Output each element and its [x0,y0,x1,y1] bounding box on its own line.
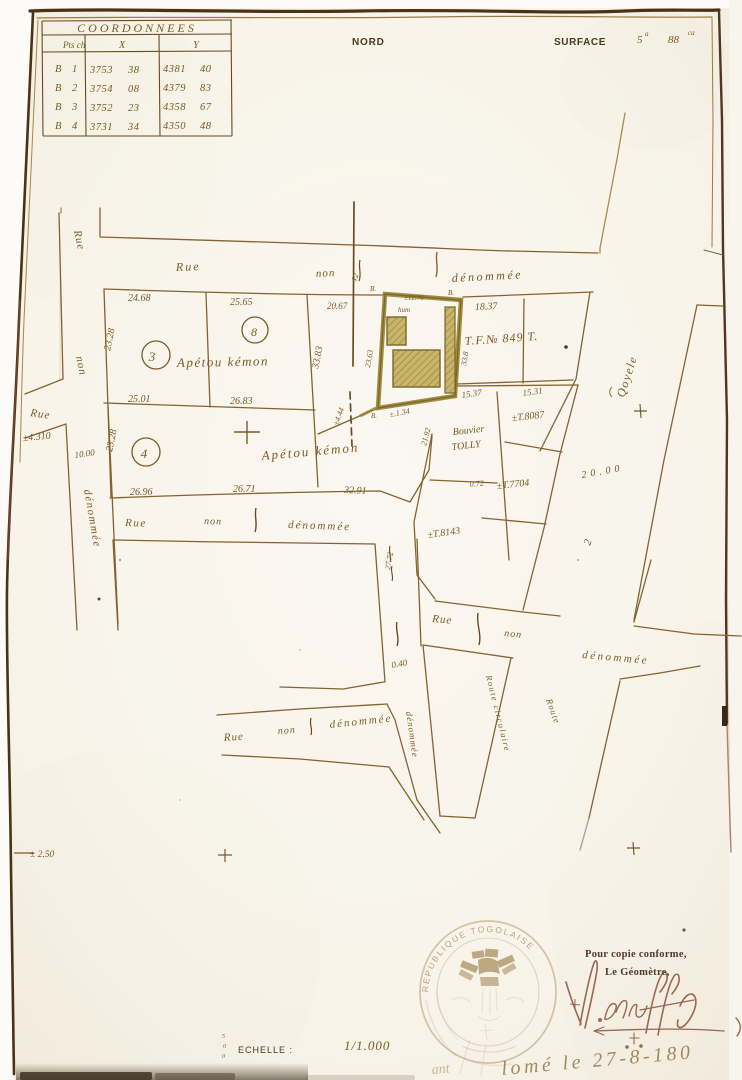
svg-text:32.91: 32.91 [343,485,367,497]
svg-text:38: 38 [127,65,140,76]
svg-text:3753: 3753 [89,65,113,76]
svg-text:0.72: 0.72 [469,479,484,489]
svg-text:B: B [55,121,62,132]
svg-text:Le Géomètre,: Le Géomètre, [605,967,670,978]
svg-text:non: non [277,725,296,737]
svg-text:Rue: Rue [222,731,244,744]
svg-text:3754: 3754 [89,84,113,95]
svg-text:26.71: 26.71 [233,484,256,495]
svg-text:Pour copie conforme,: Pour copie conforme, [585,949,687,960]
svg-text:B.: B. [371,412,377,420]
svg-text:COORDONNEES: COORDONNEES [77,21,197,35]
svg-text:26.96: 26.96 [130,487,153,498]
svg-text:B.: B. [448,289,454,297]
svg-text:Rue: Rue [175,259,201,274]
svg-text:26.83: 26.83 [230,396,253,407]
svg-text:5: 5 [637,34,643,46]
svg-text:non: non [504,628,523,641]
svg-text:3752: 3752 [89,103,113,114]
svg-text:SURFACE: SURFACE [554,37,606,48]
svg-text:B.: B. [370,285,376,293]
svg-text:5: 5 [222,1034,225,1040]
svg-text:1/1.000: 1/1.000 [344,1038,390,1053]
svg-text:4: 4 [141,446,148,461]
svg-text:8: 8 [251,325,257,339]
svg-text:4: 4 [72,121,78,132]
svg-text:4358: 4358 [163,102,186,113]
svg-text:48: 48 [200,121,212,132]
svg-text:ca: ca [688,29,695,37]
svg-text:non: non [316,267,336,280]
svg-text:X: X [118,40,126,51]
svg-text:±12.76: ±12.76 [404,294,424,302]
svg-text:24.68: 24.68 [128,293,151,304]
svg-text:ECHELLE :: ECHELLE : [238,1045,293,1055]
svg-text:0: 0 [223,1044,226,1050]
svg-text:B: B [55,64,62,75]
svg-text:25.65: 25.65 [230,297,253,308]
svg-text:4381: 4381 [163,64,186,75]
svg-text:Rue: Rue [124,517,147,530]
svg-text:dénommée: dénommée [288,519,351,533]
svg-text:a: a [645,30,649,38]
svg-text:non: non [204,516,222,528]
svg-text:20.67: 20.67 [327,301,348,311]
svg-text:23: 23 [128,103,140,114]
svg-text:Rue: Rue [431,613,453,627]
svg-text:4350: 4350 [163,121,186,132]
svg-text:1: 1 [72,64,78,75]
svg-text:67: 67 [200,102,212,113]
svg-text:hum: hum [398,306,410,314]
svg-text:3731: 3731 [89,122,113,133]
svg-text:Apétou kémon: Apétou kémon [176,353,269,370]
svg-text:2: 2 [72,83,78,94]
svg-text:18.37: 18.37 [475,301,499,313]
svg-text:NORD: NORD [352,37,385,48]
svg-text:Pts ch: Pts ch [62,40,86,50]
svg-text:B: B [55,102,62,113]
svg-text:25.01: 25.01 [128,394,151,405]
svg-text:4379: 4379 [163,83,186,94]
svg-text:± 2.50: ± 2.50 [30,850,54,860]
svg-text:3: 3 [148,349,156,364]
svg-text:40: 40 [200,64,212,75]
svg-text:08: 08 [128,84,140,95]
svg-text:34: 34 [127,122,140,133]
svg-text:B: B [55,83,62,94]
svg-text:ant: ant [431,1061,451,1078]
svg-text:3: 3 [71,102,78,113]
svg-text:88: 88 [668,34,680,46]
svg-text:0: 0 [222,1054,225,1060]
svg-text:83: 83 [200,83,212,94]
